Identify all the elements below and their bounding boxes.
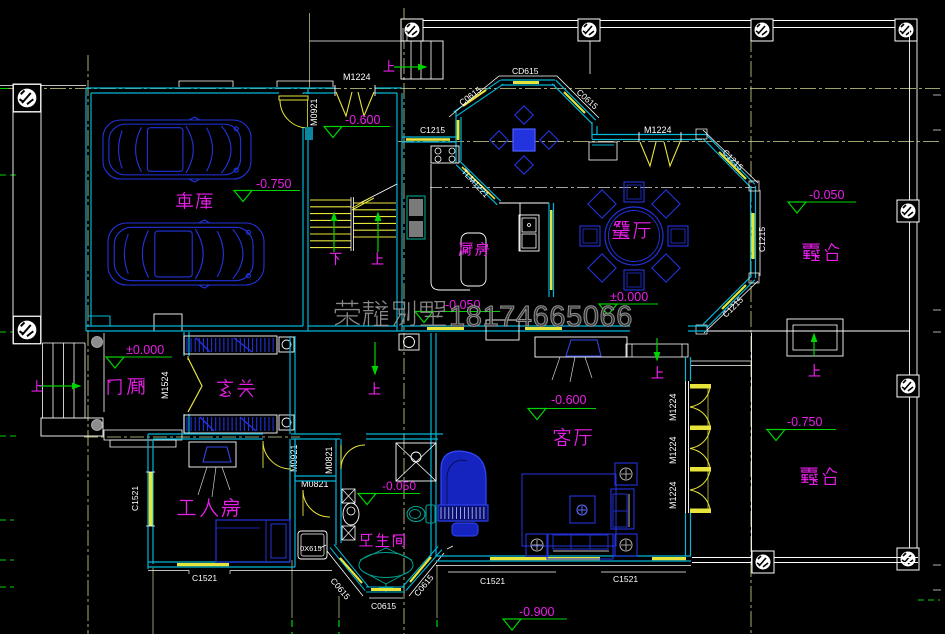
svg-text:C1215: C1215 [420,125,445,135]
svg-text:M0921: M0921 [289,444,299,472]
svg-text:M1224: M1224 [644,125,672,135]
svg-text:M1524: M1524 [160,371,170,399]
svg-text:18174665066: 18174665066 [449,301,633,333]
svg-text:C1521: C1521 [130,486,140,511]
svg-text:-0.900: -0.900 [519,605,554,619]
svg-text:M1224: M1224 [668,436,678,464]
svg-text:M1224: M1224 [668,481,678,509]
svg-text:M0921: M0921 [309,98,319,126]
svg-text:-0.050: -0.050 [809,188,844,202]
svg-text:CD615: CD615 [512,66,539,76]
svg-text:-0.600: -0.600 [345,113,380,127]
svg-text:-0.050: -0.050 [382,479,416,493]
svg-text:-0.750: -0.750 [787,415,822,429]
svg-text:C1521: C1521 [192,573,217,583]
svg-text:M1224: M1224 [343,72,371,82]
svg-text:-0.750: -0.750 [256,177,291,191]
svg-text:M1224: M1224 [668,393,678,421]
svg-text:±0.000: ±0.000 [126,343,164,357]
svg-text:-0.600: -0.600 [551,393,586,407]
svg-text:C0615: C0615 [371,601,396,611]
svg-text:M0821: M0821 [324,446,334,474]
svg-text:C1215: C1215 [757,227,767,252]
svg-text:C1521: C1521 [480,576,505,586]
svg-text:C1521: C1521 [613,574,638,584]
svg-text:0X615: 0X615 [300,544,322,553]
